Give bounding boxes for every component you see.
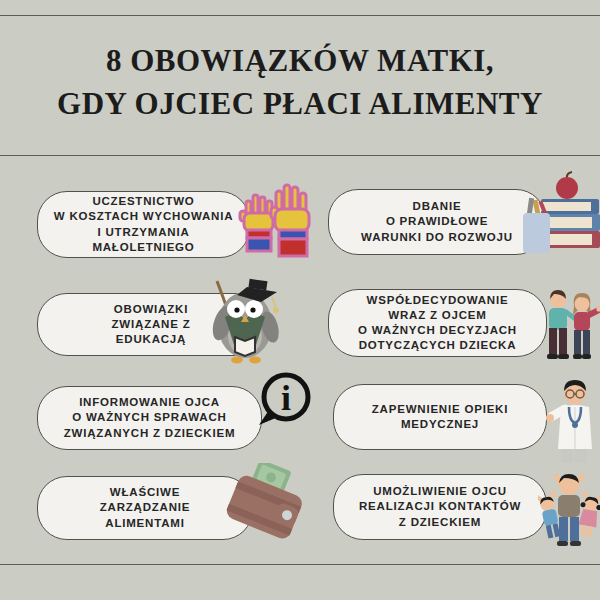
duty-card-4: WSPÓŁDECYDOWANIE WRAZ Z OJCEM O WAŻNYCH … — [328, 289, 547, 357]
duty-card-5: INFORMOWANIE OJCA O WAŻNYCH SPRAWACH ZWI… — [37, 386, 262, 450]
page-title-line2: GDY OJCIEC PŁACI ALIMENTY — [0, 83, 600, 126]
duty-card-text: OBOWIĄZKI ZWIĄZANE Z EDUKACJĄ — [112, 302, 191, 348]
info-bubble-icon: i — [256, 369, 313, 432]
raised-hands-icon — [238, 183, 316, 261]
duty-card-8: UMOŻLIWIENIE OJCU REALIZACJI KONTAKTÓW Z… — [333, 474, 547, 540]
duty-card-text: INFORMOWANIE OJCA O WAŻNYCH SPRAWACH ZWI… — [64, 395, 236, 441]
parents-couple-icon — [542, 286, 600, 372]
books-apple-icon — [521, 171, 600, 264]
duty-card-text: WŁAŚCIWE ZARZĄDZANIE ALIMENTAMI — [100, 485, 191, 531]
family-children-icon — [538, 462, 600, 558]
duty-card-text: ZAPEWNIENIE OPIEKI MEDYCZNEJ — [372, 402, 508, 432]
header-divider — [0, 155, 600, 156]
infographic-canvas: 8 OBOWIĄZKÓW MATKI, GDY OJCIEC PŁACI ALI… — [0, 0, 600, 600]
doctor-icon — [546, 378, 600, 467]
page-title: 8 OBOWIĄZKÓW MATKI, GDY OJCIEC PŁACI ALI… — [0, 40, 600, 126]
page-title-line1: 8 OBOWIĄZKÓW MATKI, — [0, 40, 600, 83]
duty-card-text: WSPÓŁDECYDOWANIE WRAZ Z OJCEM O WAŻNYCH … — [358, 293, 517, 354]
wallet-money-icon — [221, 463, 314, 550]
duty-card-text: DBANIE O PRAWIDŁOWE WARUNKI DO ROZWOJU — [361, 199, 513, 245]
duty-card-text: UCZESTNICTWO W KOSZTACH WYCHOWANIA I UTR… — [54, 194, 233, 255]
duty-card-2: DBANIE O PRAWIDŁOWE WARUNKI DO ROZWOJU — [328, 189, 546, 255]
svg-text:i: i — [281, 378, 291, 418]
bottom-divider — [0, 564, 600, 565]
duty-card-1: UCZESTNICTWO W KOSZTACH WYCHOWANIA I UTR… — [37, 191, 250, 258]
duty-card-6: ZAPEWNIENIE OPIEKI MEDYCZNEJ — [333, 384, 547, 450]
duty-card-text: UMOŻLIWIENIE OJCU REALIZACJI KONTAKTÓW Z… — [359, 484, 521, 530]
graduate-owl-icon — [197, 275, 286, 366]
top-divider — [0, 15, 600, 16]
